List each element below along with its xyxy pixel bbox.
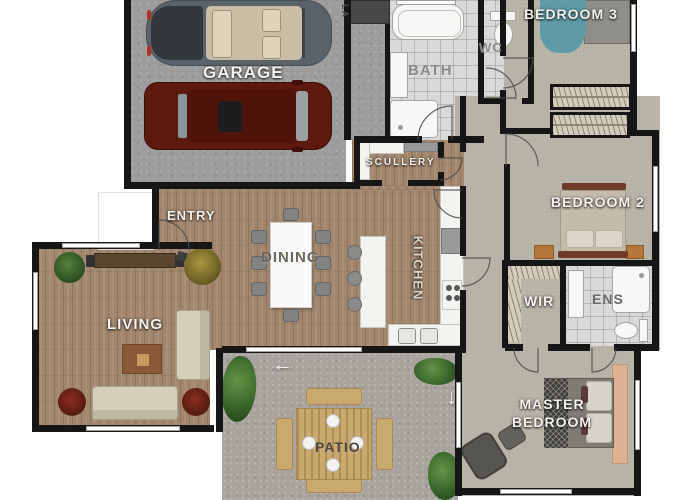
plate [326,414,340,428]
bed2-pillow [566,230,594,248]
window [653,166,658,232]
room-label-master-line1: MASTER [494,396,610,414]
wir-closet-top [508,266,564,279]
burner [446,295,452,301]
wall [460,186,466,256]
red-plant [182,388,210,416]
dining-chair [283,208,299,221]
patio-bench [276,418,293,470]
room-label-laundry: LA [340,4,350,18]
plate [302,436,316,450]
window [86,426,180,431]
wardrobe-rail [553,96,629,98]
window [396,0,456,5]
wall [216,348,223,432]
window [33,272,38,330]
shower-drain [398,125,403,130]
bedroom3-wardrobe [550,112,630,138]
potted-plant [54,252,85,283]
room-label-bedroom3: BEDROOM 3 [524,6,618,22]
window [635,380,640,450]
wall [505,344,523,351]
car-convertible [146,0,332,66]
wall [408,180,442,186]
wall [32,242,39,432]
island-stool [347,245,362,260]
coffee-table [122,344,162,374]
dining-chair [283,309,299,322]
wir-closet-left [508,279,521,343]
car-suv-sunroof [218,101,242,132]
potted-plant [184,248,221,285]
wall [124,182,360,189]
plate [326,458,340,472]
wall [354,136,360,186]
patio-bench [306,388,362,405]
wall [548,344,590,351]
car-suv-windshield [296,91,308,141]
window [500,489,572,494]
island-stool [347,271,362,286]
bedroom3-wardrobe [550,84,632,110]
room-label-patio: PATIO [315,439,361,455]
wall [438,172,444,186]
car-convertible-trunk [151,6,203,60]
room-label-bath: BATH [408,62,453,79]
ens-vanity [568,270,584,318]
dining-chair [315,230,331,244]
slide-left-arrow-icon: ← [272,353,293,377]
sofa [92,386,178,420]
wall [500,128,550,134]
wall [124,0,131,189]
wall [438,142,444,158]
wall [344,0,351,140]
room-label-wir: WIR [524,293,554,309]
dining-chair [315,282,331,296]
bush [414,358,458,385]
scullery-appliance [404,142,438,152]
room-label-master-line2: BEDROOM [494,414,610,432]
bed2-pillow [595,230,623,248]
wall [448,136,484,143]
wall [502,260,508,348]
room-label-kitchen: KITCHEN [411,236,426,301]
wall [152,188,159,248]
island-stool [347,297,362,312]
ens-toilet-bowl [614,322,638,339]
room-label-living: LIVING [107,316,163,333]
wall [385,24,390,140]
wall [504,164,510,264]
bed2-headboard [558,251,628,258]
window [631,4,636,52]
room-label-dining: DINING [261,249,320,266]
wardrobe-rail [553,124,627,126]
kitchen-sink [398,328,416,344]
room-label-master: MASTER BEDROOM [494,396,610,431]
coffee-table-inlay [137,354,149,366]
room-label-wc: WC [479,40,503,55]
nightstand [534,245,554,259]
car-front-seat [262,36,281,59]
burner [446,285,452,291]
wall [354,136,422,143]
wall [502,260,564,266]
slide-down-arrow-icon: ↓ [446,386,457,410]
wall [560,260,658,266]
car-rear-seat [212,10,232,58]
room-label-garage: GARAGE [203,63,284,83]
bath-vanity [390,52,408,98]
sliding-door-patio [246,347,362,352]
wall [652,130,659,350]
nightstand [626,245,644,259]
sofa-back [93,410,177,419]
tv-console [94,253,176,268]
bathtub-inner [398,10,461,37]
room-label-bedroom2: BEDROOM 2 [551,194,645,210]
wall [560,260,566,348]
window [62,243,140,248]
room-label-ens: ENS [592,291,624,307]
floor-plan: GARAGE LA BATH WC BEDROOM 3 SCULLERY ENT… [0,0,700,500]
car-suv-rear-window [178,94,187,138]
speaker [86,255,95,267]
car-suv-mirror [292,147,303,152]
master-headboard [612,364,628,464]
car-taillight [147,10,151,20]
kitchen-sink [420,328,438,344]
dining-chair [251,282,267,296]
car-front-seat [262,9,281,32]
car-windshield [302,8,305,58]
room-label-scullery: SCULLERY [366,157,436,168]
bathtub [392,4,464,40]
wall [354,180,382,186]
ens-toilet-tank [639,319,648,342]
bath-shower [390,100,438,138]
red-plant [58,388,86,416]
sofa [176,310,210,380]
dining-chair [251,230,267,244]
car-suv-mirror [292,80,303,85]
shower-drain [639,273,644,278]
kitchen-island [360,236,386,328]
car-taillight [147,46,151,56]
wall [460,290,466,350]
washing-machine [349,0,390,24]
room-label-entry: ENTRY [167,208,216,223]
car-suv [144,82,332,150]
sofa-back [200,311,209,379]
kitchen-cooktop [442,280,462,310]
wall [460,96,466,152]
patio-bench [376,418,393,470]
bed2-bench [562,183,626,190]
